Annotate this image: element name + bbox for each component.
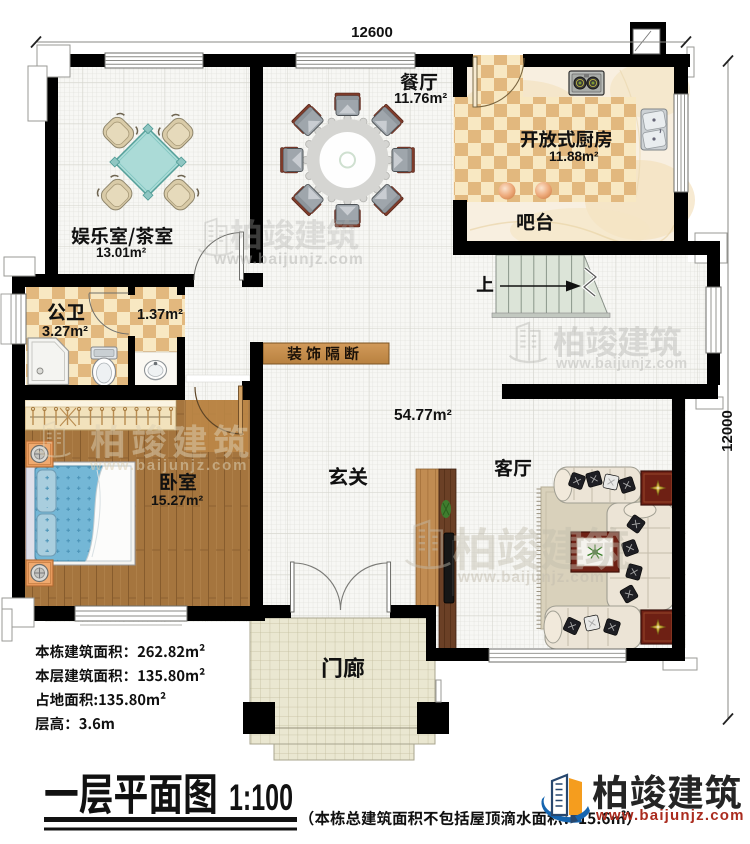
svg-text:www.baijunjz.com: www.baijunjz.com xyxy=(457,569,605,586)
svg-text:54.77m²: 54.77m² xyxy=(394,407,452,424)
svg-text:13.01m²: 13.01m² xyxy=(96,245,147,260)
svg-text:1:100: 1:100 xyxy=(229,777,293,818)
svg-text:12600: 12600 xyxy=(351,24,393,41)
svg-text:www.baijunjz.com: www.baijunjz.com xyxy=(595,807,745,824)
svg-text:1.37m²: 1.37m² xyxy=(137,307,183,323)
svg-text:www.baijunjz.com: www.baijunjz.com xyxy=(213,251,364,268)
svg-text:3.27m²: 3.27m² xyxy=(42,324,88,340)
svg-text:www.baijunjz.com: www.baijunjz.com xyxy=(555,356,688,372)
svg-text:12000: 12000 xyxy=(719,410,736,452)
svg-text:15.27m²: 15.27m² xyxy=(151,492,203,508)
svg-text:11.76m²: 11.76m² xyxy=(394,91,447,107)
svg-text:www.baijunjz.com: www.baijunjz.com xyxy=(89,457,248,474)
svg-text:11.88m²: 11.88m² xyxy=(549,149,599,164)
